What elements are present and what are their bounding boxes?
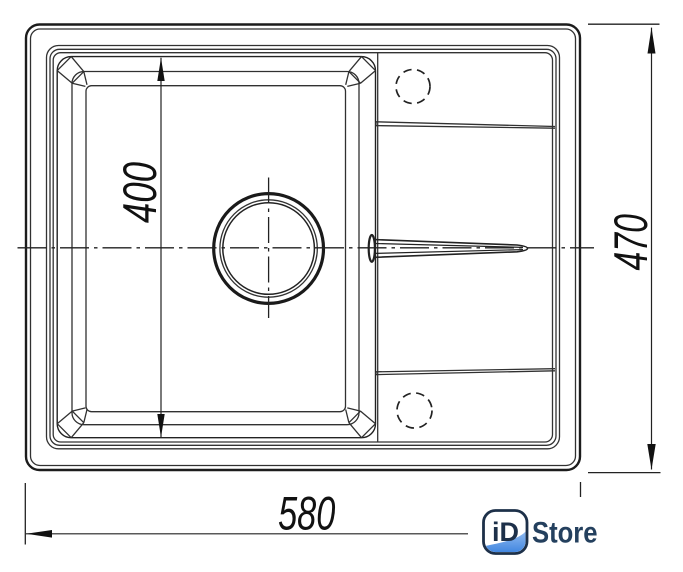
svg-text:470: 470 [605, 214, 658, 271]
svg-text:400: 400 [113, 162, 165, 224]
svg-text:580: 580 [278, 487, 335, 540]
svg-text:Store: Store [532, 516, 598, 549]
svg-text:iD: iD [492, 517, 519, 547]
